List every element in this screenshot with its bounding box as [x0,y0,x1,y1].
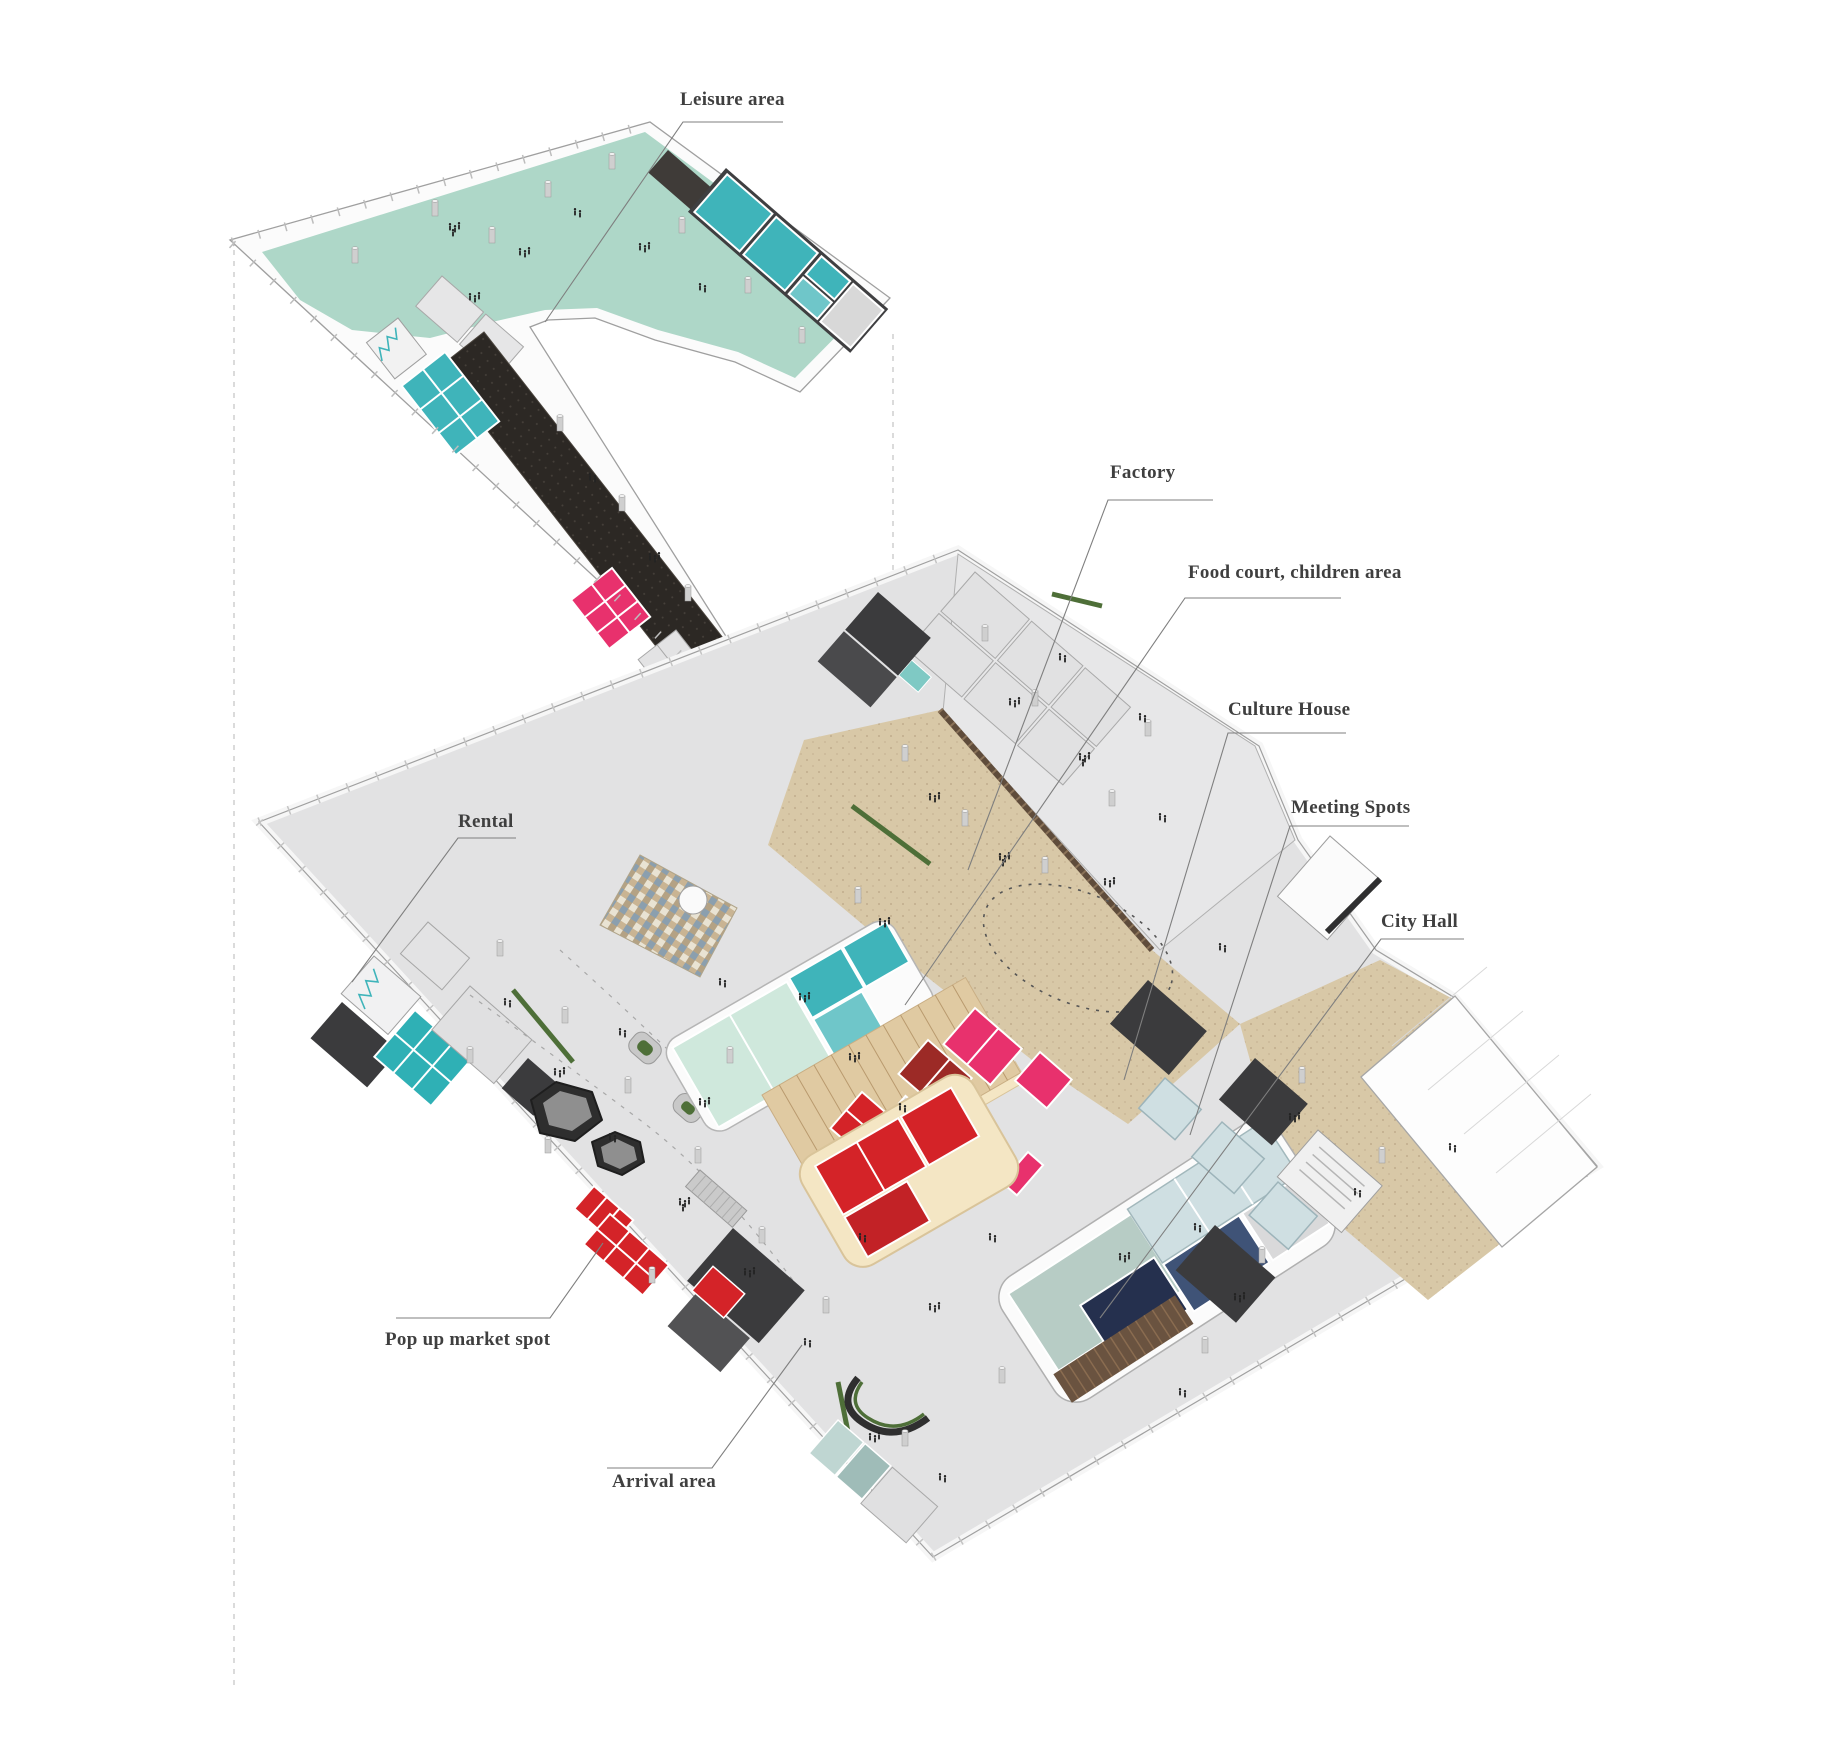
label-city-hall: City Hall [1381,912,1458,933]
ground-plate [259,550,1597,1557]
label-food-court: Food court, children area [1188,563,1402,584]
label-rental: Rental [458,812,514,833]
label-leisure-area: Leisure area [680,90,785,111]
leader-pop-up-market [396,1243,603,1318]
diagram-scene [0,0,1828,1744]
round-table [679,886,707,914]
label-pop-up-market: Pop up market spot [385,1330,550,1351]
axonometric-diagram-canvas: Leisure area Factory Food court, childre… [0,0,1828,1744]
label-culture-house: Culture House [1228,700,1350,721]
label-arrival-area: Arrival area [612,1472,716,1493]
label-factory: Factory [1110,463,1175,484]
label-meeting-spots: Meeting Spots [1291,798,1410,819]
